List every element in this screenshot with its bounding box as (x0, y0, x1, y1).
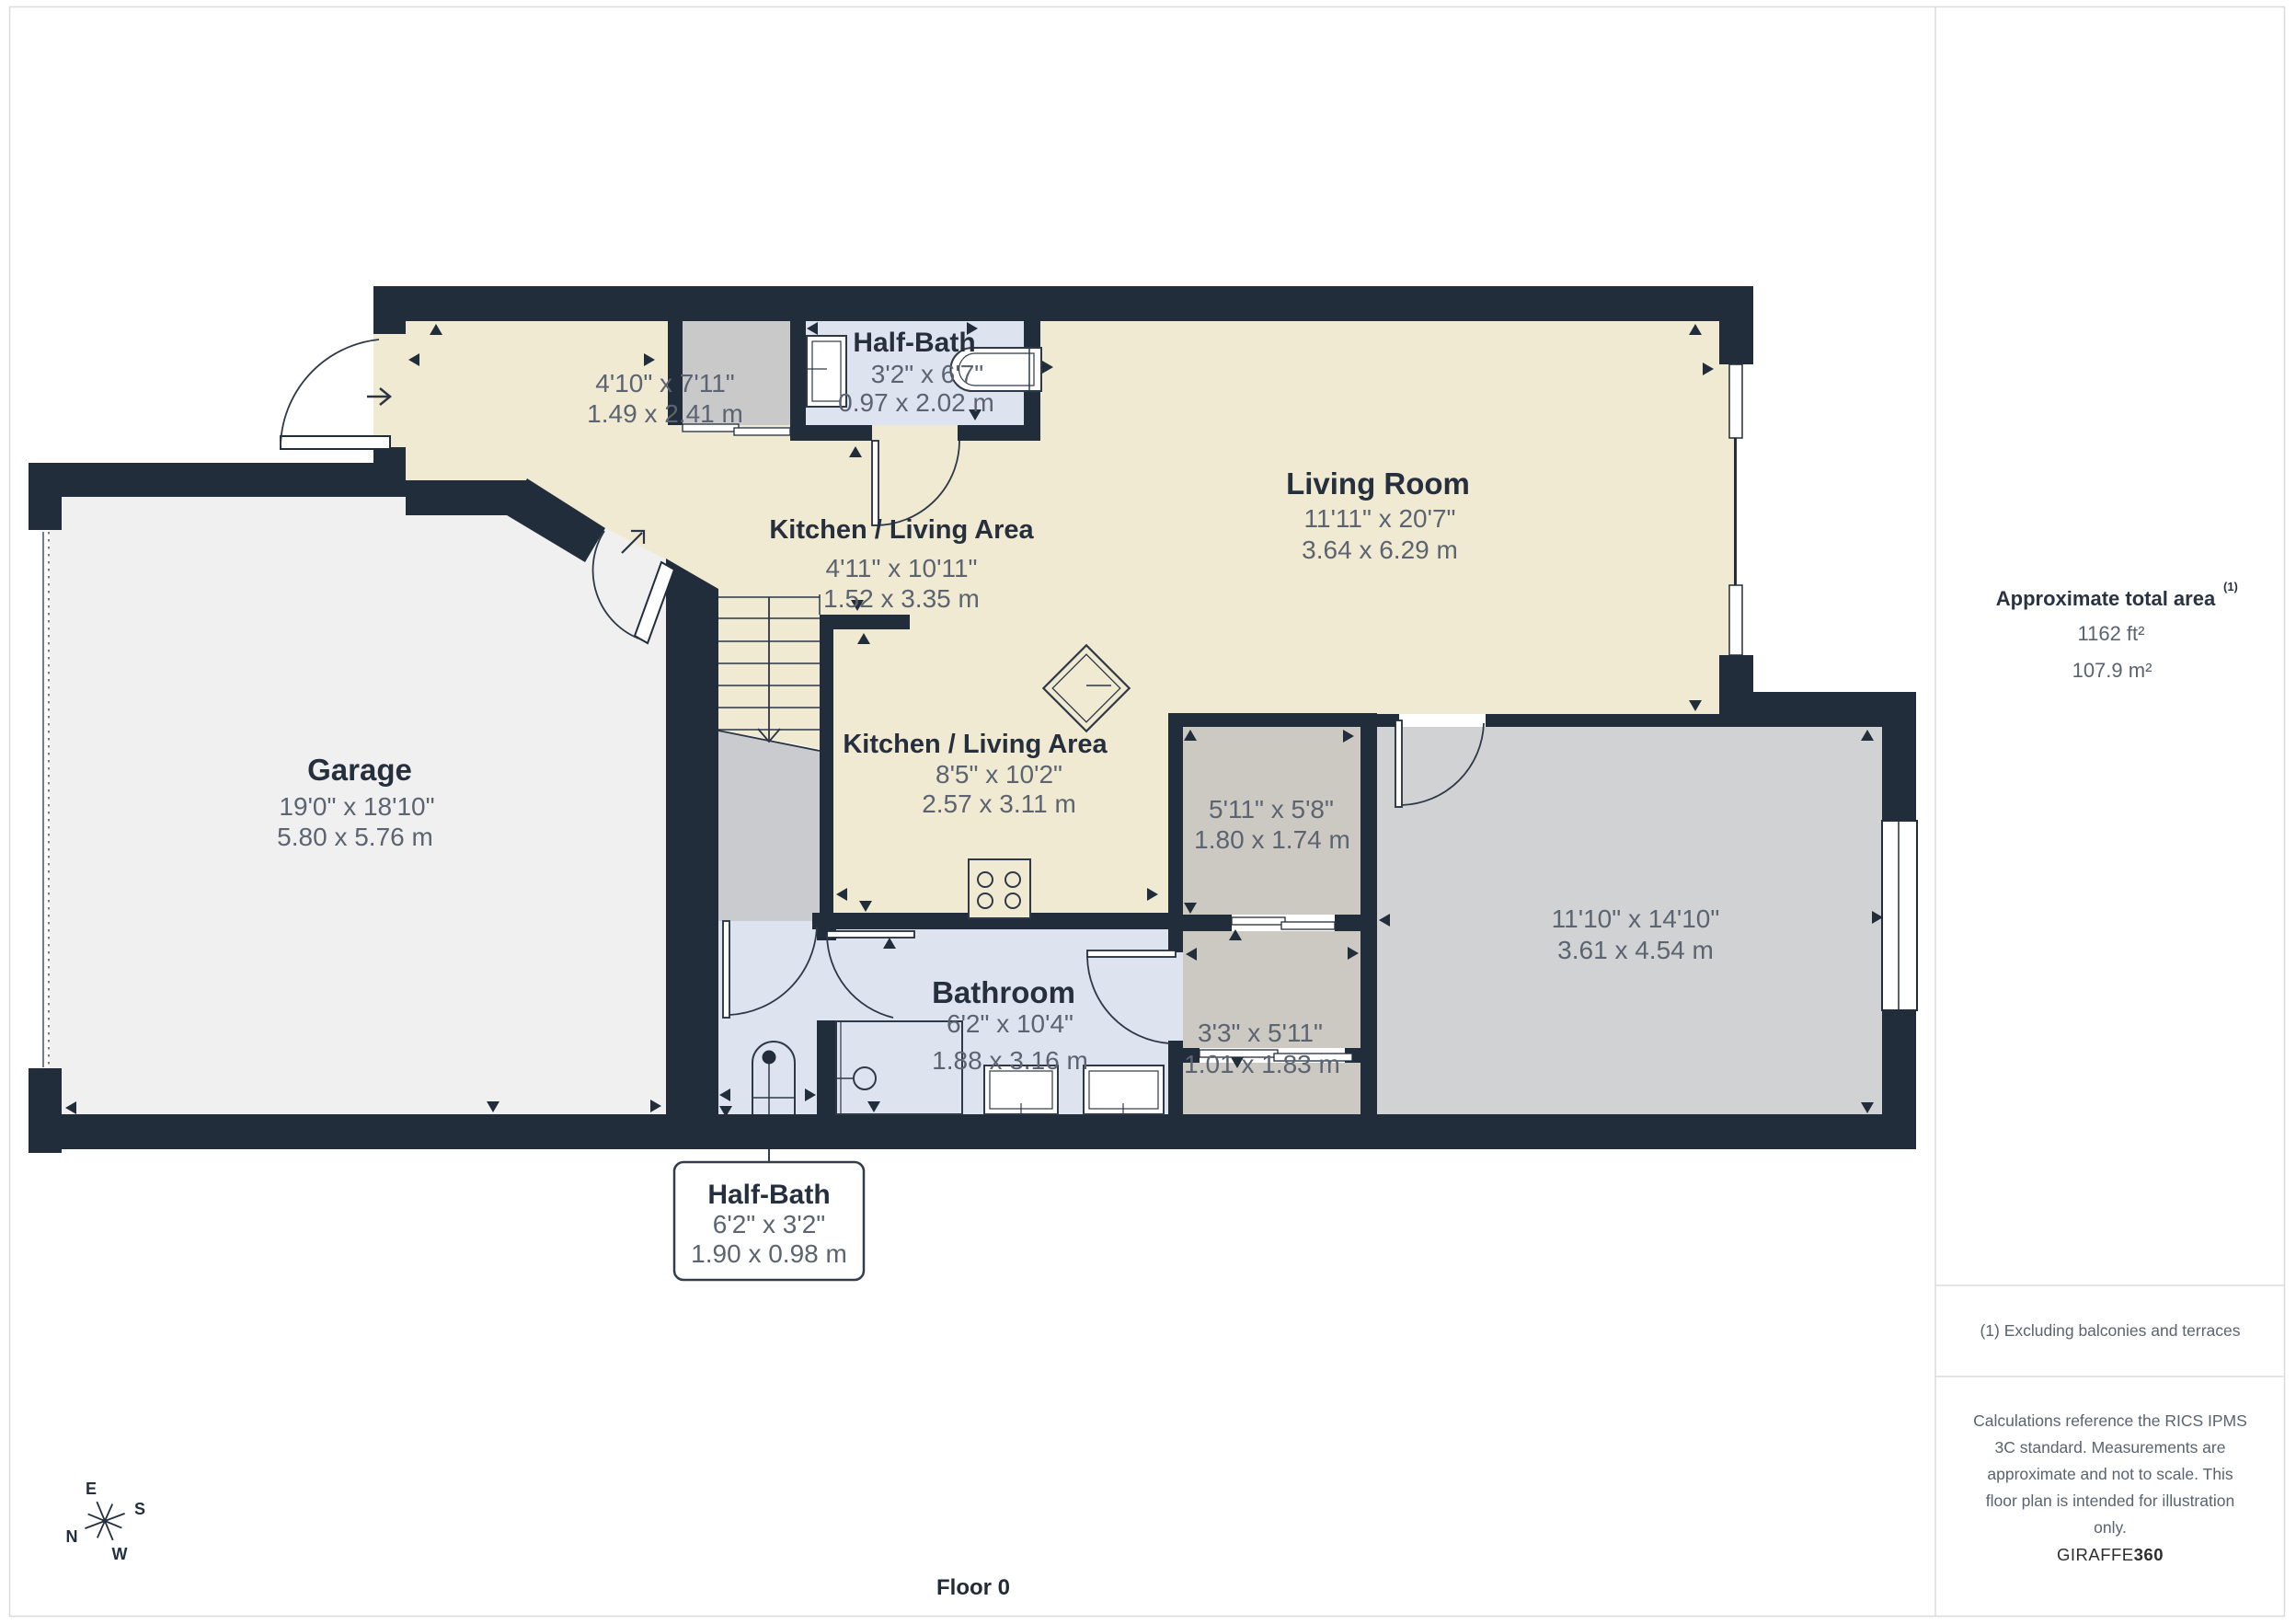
svg-text:1.01 x 1.83 m: 1.01 x 1.83 m (1184, 1050, 1340, 1078)
svg-text:1.80 x 1.74 m: 1.80 x 1.74 m (1194, 825, 1350, 854)
svg-text:8'5" x 10'2": 8'5" x 10'2" (936, 760, 1062, 789)
svg-text:Calculations reference the RIC: Calculations reference the RICS IPMS (1973, 1411, 2247, 1430)
svg-text:1162 ft²: 1162 ft² (2078, 622, 2145, 645)
svg-text:floor plan is intended for ill: floor plan is intended for illustration (1986, 1492, 2234, 1510)
svg-text:3.61 x 4.54 m: 3.61 x 4.54 m (1557, 936, 1714, 964)
svg-text:approximate and not to scale.: approximate and not to scale. This (1987, 1465, 2233, 1483)
svg-text:5.80 x 5.76 m: 5.80 x 5.76 m (277, 823, 433, 851)
svg-text:S: S (134, 1500, 145, 1518)
svg-text:(1) Excluding balconies and te: (1) Excluding balconies and terraces (1980, 1321, 2240, 1340)
svg-text:Half-Bath: Half-Bath (853, 328, 975, 358)
svg-text:1.52 x 3.35 m: 1.52 x 3.35 m (823, 584, 980, 613)
svg-text:6'2" x 10'4": 6'2" x 10'4" (947, 1009, 1073, 1038)
svg-text:11'11" x 20'7": 11'11" x 20'7" (1304, 504, 1456, 533)
svg-text:19'0" x 18'10": 19'0" x 18'10" (279, 792, 434, 821)
svg-text:5'11" x 5'8": 5'11" x 5'8" (1209, 795, 1334, 824)
svg-text:3C standard. Measurements are: 3C standard. Measurements are (1995, 1438, 2226, 1457)
svg-text:Kitchen / Living Area: Kitchen / Living Area (769, 515, 1034, 545)
svg-text:2.57 x 3.11 m: 2.57 x 3.11 m (922, 789, 1076, 818)
svg-text:Kitchen / Living Area: Kitchen / Living Area (843, 730, 1108, 759)
svg-text:11'10" x 14'10": 11'10" x 14'10" (1552, 904, 1720, 933)
svg-text:only.: only. (2094, 1518, 2127, 1537)
svg-text:Garage: Garage (307, 753, 412, 787)
svg-text:3.64 x 6.29 m: 3.64 x 6.29 m (1302, 536, 1458, 564)
svg-text:107.9 m²: 107.9 m² (2072, 659, 2152, 682)
svg-text:Floor 0: Floor 0 (936, 1575, 1010, 1600)
svg-text:1.49 x 2.41 m: 1.49 x 2.41 m (587, 399, 743, 428)
svg-text:0.97 x 2.02 m: 0.97 x 2.02 m (838, 388, 994, 417)
svg-text:W: W (112, 1545, 128, 1563)
svg-text:Bathroom: Bathroom (932, 975, 1075, 1009)
svg-text:Half-Bath: Half-Bath (707, 1180, 830, 1210)
svg-text:Living Room: Living Room (1286, 466, 1470, 501)
svg-text:4'11" x 10'11": 4'11" x 10'11" (826, 554, 978, 582)
svg-text:(1): (1) (2223, 580, 2238, 593)
svg-text:6'2" x 3'2": 6'2" x 3'2" (713, 1210, 825, 1238)
svg-text:E: E (86, 1480, 97, 1498)
svg-text:3'2" x 6'7": 3'2" x 6'7" (871, 360, 983, 388)
svg-text:4'10" x 7'11": 4'10" x 7'11" (595, 369, 734, 397)
svg-text:3'3" x 5'11": 3'3" x 5'11" (1198, 1019, 1323, 1047)
svg-text:1.88 x 3.16 m: 1.88 x 3.16 m (932, 1046, 1088, 1075)
svg-text:GIRAFFE360: GIRAFFE360 (2057, 1545, 2164, 1564)
svg-text:1.90 x 0.98 m: 1.90 x 0.98 m (691, 1239, 847, 1268)
svg-text:N: N (66, 1527, 78, 1546)
svg-text:Approximate total area: Approximate total area (1996, 587, 2216, 610)
